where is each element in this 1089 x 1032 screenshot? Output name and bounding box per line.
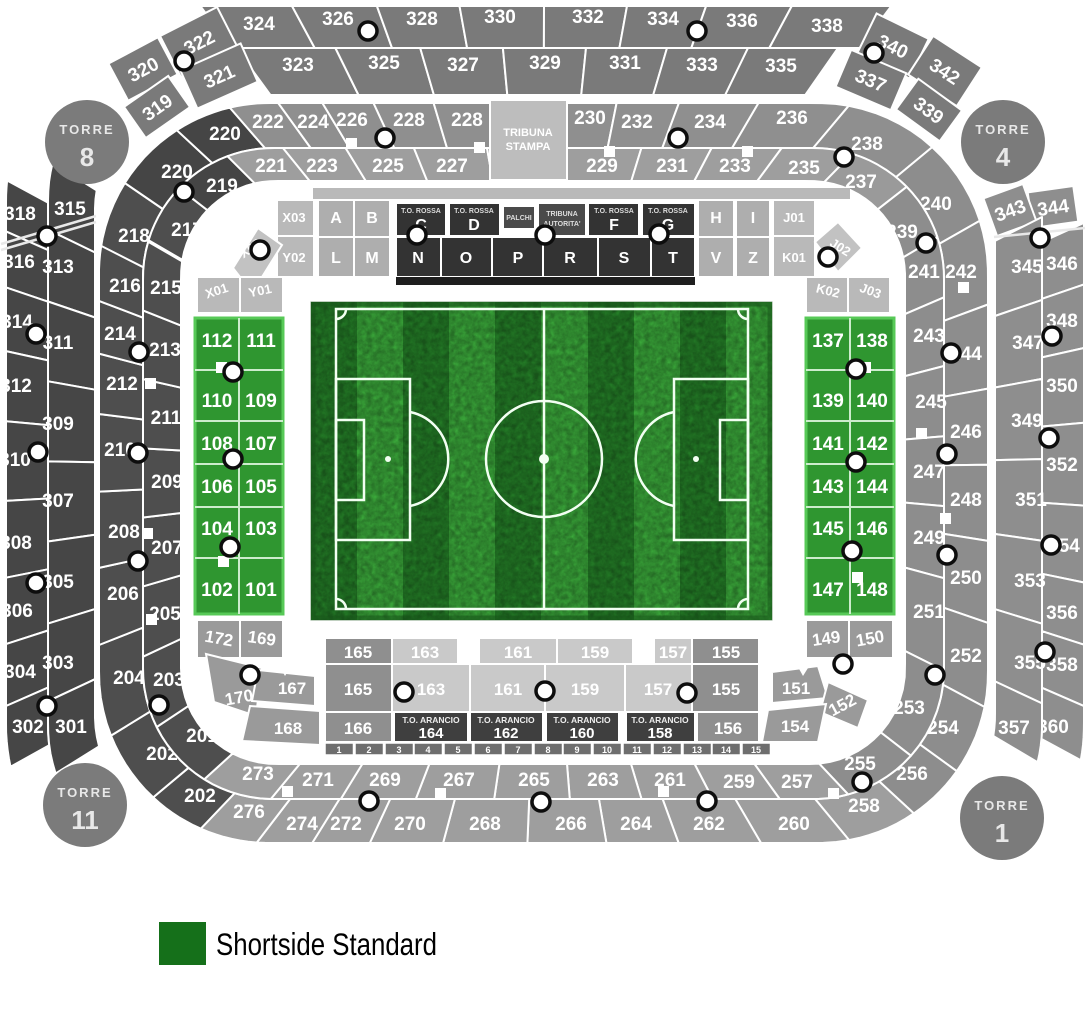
svg-text:247: 247 bbox=[913, 462, 945, 483]
svg-text:303: 303 bbox=[42, 653, 74, 674]
svg-text:109: 109 bbox=[245, 391, 277, 412]
svg-text:203: 203 bbox=[153, 670, 185, 691]
svg-text:PALCHI: PALCHI bbox=[506, 215, 532, 222]
svg-text:166: 166 bbox=[344, 719, 372, 738]
svg-text:331: 331 bbox=[609, 53, 641, 74]
svg-text:318: 318 bbox=[4, 204, 36, 225]
svg-text:3: 3 bbox=[396, 745, 401, 755]
svg-text:242: 242 bbox=[945, 262, 977, 283]
svg-text:212: 212 bbox=[106, 374, 138, 395]
svg-text:257: 257 bbox=[781, 772, 813, 793]
svg-text:168: 168 bbox=[274, 719, 302, 738]
svg-text:11: 11 bbox=[71, 805, 99, 835]
svg-text:246: 246 bbox=[950, 422, 982, 443]
svg-text:A: A bbox=[330, 210, 342, 227]
svg-text:326: 326 bbox=[322, 9, 354, 30]
svg-text:245: 245 bbox=[915, 392, 947, 413]
svg-text:155: 155 bbox=[712, 643, 740, 662]
svg-text:157: 157 bbox=[644, 680, 672, 699]
svg-text:204: 204 bbox=[113, 668, 145, 689]
svg-text:112: 112 bbox=[202, 331, 233, 352]
svg-text:2: 2 bbox=[366, 745, 371, 755]
svg-text:248: 248 bbox=[950, 490, 982, 511]
svg-text:227: 227 bbox=[436, 156, 468, 177]
svg-text:12: 12 bbox=[662, 745, 672, 755]
svg-text:T.O. ARANCIO: T.O. ARANCIO bbox=[553, 715, 611, 725]
svg-text:276: 276 bbox=[233, 802, 265, 823]
svg-text:160: 160 bbox=[569, 725, 594, 742]
svg-text:155: 155 bbox=[712, 680, 740, 699]
svg-text:8: 8 bbox=[545, 745, 550, 755]
svg-text:142: 142 bbox=[856, 434, 888, 455]
svg-text:264: 264 bbox=[620, 814, 652, 835]
svg-text:311: 311 bbox=[43, 333, 74, 354]
svg-text:T.O. ROSSA: T.O. ROSSA bbox=[648, 208, 688, 215]
svg-text:X03: X03 bbox=[282, 210, 305, 225]
svg-text:163: 163 bbox=[411, 643, 439, 662]
svg-text:7: 7 bbox=[515, 745, 520, 755]
svg-text:310: 310 bbox=[0, 450, 31, 471]
svg-text:234: 234 bbox=[694, 112, 726, 133]
svg-text:335: 335 bbox=[765, 56, 797, 77]
svg-text:TRIBUNA: TRIBUNA bbox=[546, 211, 578, 218]
svg-text:161: 161 bbox=[494, 680, 522, 699]
svg-text:274: 274 bbox=[286, 814, 318, 835]
svg-text:349: 349 bbox=[1011, 411, 1043, 432]
svg-text:6: 6 bbox=[485, 745, 490, 755]
svg-text:306: 306 bbox=[1, 601, 33, 622]
svg-text:157: 157 bbox=[659, 643, 687, 662]
svg-text:217: 217 bbox=[171, 220, 203, 241]
svg-text:167: 167 bbox=[278, 679, 306, 698]
svg-text:209: 209 bbox=[151, 472, 183, 493]
svg-text:N: N bbox=[412, 250, 424, 267]
svg-text:137: 137 bbox=[812, 331, 844, 352]
svg-text:271: 271 bbox=[302, 770, 334, 791]
svg-text:301: 301 bbox=[55, 717, 87, 738]
svg-text:228: 228 bbox=[393, 110, 425, 131]
svg-text:TRIBUNA: TRIBUNA bbox=[503, 127, 553, 139]
svg-text:268: 268 bbox=[469, 814, 501, 835]
svg-text:106: 106 bbox=[201, 477, 233, 498]
svg-text:H: H bbox=[710, 210, 722, 227]
svg-text:140: 140 bbox=[856, 391, 888, 412]
svg-text:302: 302 bbox=[12, 717, 44, 738]
svg-text:215: 215 bbox=[150, 278, 182, 299]
svg-text:T.O. ROSSA: T.O. ROSSA bbox=[594, 208, 634, 215]
svg-text:1: 1 bbox=[995, 818, 1009, 848]
svg-text:102: 102 bbox=[201, 580, 233, 601]
svg-text:350: 350 bbox=[1046, 376, 1078, 397]
svg-text:T.O. ROSSA: T.O. ROSSA bbox=[401, 208, 441, 215]
svg-text:330: 330 bbox=[484, 7, 516, 28]
svg-text:S: S bbox=[619, 250, 630, 267]
svg-text:229: 229 bbox=[586, 156, 618, 177]
svg-text:T.O. ARANCIO: T.O. ARANCIO bbox=[477, 715, 535, 725]
svg-text:308: 308 bbox=[0, 533, 32, 554]
svg-text:Y02: Y02 bbox=[282, 250, 305, 265]
svg-text:315: 315 bbox=[54, 199, 86, 220]
svg-text:243: 243 bbox=[913, 326, 945, 347]
svg-text:226: 226 bbox=[336, 110, 368, 131]
svg-text:325: 325 bbox=[368, 53, 400, 74]
svg-text:151: 151 bbox=[782, 679, 810, 698]
svg-text:357: 357 bbox=[998, 718, 1030, 739]
svg-text:216: 216 bbox=[109, 276, 141, 297]
svg-text:159: 159 bbox=[571, 680, 599, 699]
svg-text:143: 143 bbox=[812, 477, 844, 498]
svg-text:105: 105 bbox=[245, 477, 277, 498]
svg-text:312: 312 bbox=[0, 376, 32, 397]
svg-text:351: 351 bbox=[1015, 490, 1047, 511]
svg-text:239: 239 bbox=[886, 222, 918, 243]
svg-text:L: L bbox=[331, 250, 341, 267]
svg-text:225: 225 bbox=[372, 156, 404, 177]
svg-text:103: 103 bbox=[245, 519, 277, 540]
svg-text:213: 213 bbox=[149, 340, 181, 361]
svg-text:259: 259 bbox=[723, 772, 755, 793]
svg-text:353: 353 bbox=[1014, 571, 1046, 592]
svg-text:221: 221 bbox=[255, 156, 287, 177]
svg-text:101: 101 bbox=[245, 580, 277, 601]
svg-text:220: 220 bbox=[209, 124, 241, 145]
svg-text:TORRE: TORRE bbox=[59, 122, 114, 137]
svg-text:138: 138 bbox=[856, 331, 888, 352]
svg-text:Shortside Standard: Shortside Standard bbox=[216, 926, 437, 962]
svg-text:11: 11 bbox=[632, 745, 642, 755]
svg-text:332: 332 bbox=[572, 7, 604, 28]
svg-text:158: 158 bbox=[647, 725, 672, 742]
svg-text:161: 161 bbox=[504, 643, 532, 662]
svg-text:O: O bbox=[460, 250, 472, 267]
svg-text:219: 219 bbox=[206, 176, 238, 197]
svg-text:201: 201 bbox=[186, 726, 218, 747]
svg-text:334: 334 bbox=[647, 9, 679, 30]
svg-text:148: 148 bbox=[856, 580, 888, 601]
svg-text:156: 156 bbox=[714, 719, 742, 738]
svg-text:262: 262 bbox=[693, 814, 725, 835]
svg-text:251: 251 bbox=[913, 602, 945, 623]
svg-text:356: 356 bbox=[1046, 603, 1078, 624]
svg-text:265: 265 bbox=[518, 770, 550, 791]
svg-text:TORRE: TORRE bbox=[975, 122, 1030, 137]
svg-text:316: 316 bbox=[3, 252, 35, 273]
svg-text:232: 232 bbox=[621, 112, 653, 133]
svg-text:328: 328 bbox=[406, 9, 438, 30]
svg-text:347: 347 bbox=[1012, 333, 1044, 354]
svg-text:346: 346 bbox=[1046, 254, 1078, 275]
svg-text:14: 14 bbox=[721, 745, 731, 755]
svg-text:309: 309 bbox=[42, 414, 74, 435]
svg-text:4: 4 bbox=[425, 745, 430, 755]
svg-text:10: 10 bbox=[602, 745, 612, 755]
svg-text:V: V bbox=[711, 250, 722, 267]
svg-text:336: 336 bbox=[726, 11, 758, 32]
svg-text:147: 147 bbox=[812, 580, 844, 601]
svg-text:5: 5 bbox=[455, 745, 460, 755]
svg-text:327: 327 bbox=[447, 55, 479, 76]
svg-text:224: 224 bbox=[297, 112, 329, 133]
svg-text:313: 313 bbox=[42, 257, 74, 278]
svg-text:228: 228 bbox=[451, 110, 483, 131]
svg-text:111: 111 bbox=[246, 331, 276, 352]
svg-text:304: 304 bbox=[4, 662, 36, 683]
svg-text:159: 159 bbox=[581, 643, 609, 662]
svg-text:230: 230 bbox=[574, 108, 606, 129]
svg-text:208: 208 bbox=[108, 522, 140, 543]
svg-text:165: 165 bbox=[344, 643, 372, 662]
svg-text:1: 1 bbox=[336, 745, 341, 755]
svg-text:329: 329 bbox=[529, 53, 561, 74]
svg-text:8: 8 bbox=[80, 142, 94, 172]
svg-text:270: 270 bbox=[394, 814, 426, 835]
svg-text:STAMPA: STAMPA bbox=[506, 141, 551, 153]
svg-text:K01: K01 bbox=[782, 250, 806, 265]
svg-text:145: 145 bbox=[812, 519, 844, 540]
svg-text:211: 211 bbox=[151, 408, 182, 429]
svg-text:R: R bbox=[564, 250, 576, 267]
svg-text:M: M bbox=[365, 250, 378, 267]
svg-text:256: 256 bbox=[896, 764, 928, 785]
svg-text:146: 146 bbox=[856, 519, 888, 540]
svg-text:272: 272 bbox=[330, 814, 362, 835]
svg-text:269: 269 bbox=[369, 770, 401, 791]
svg-text:110: 110 bbox=[202, 391, 233, 412]
svg-text:4: 4 bbox=[996, 142, 1011, 172]
svg-text:141: 141 bbox=[812, 434, 844, 455]
svg-text:238: 238 bbox=[851, 134, 883, 155]
svg-text:B: B bbox=[366, 210, 378, 227]
svg-text:206: 206 bbox=[107, 584, 139, 605]
svg-text:165: 165 bbox=[344, 680, 372, 699]
svg-text:I: I bbox=[751, 210, 755, 227]
svg-text:163: 163 bbox=[417, 680, 445, 699]
svg-text:164: 164 bbox=[418, 725, 444, 742]
svg-text:P: P bbox=[513, 250, 524, 267]
svg-text:154: 154 bbox=[781, 717, 810, 736]
svg-text:F: F bbox=[609, 217, 619, 234]
svg-text:15: 15 bbox=[751, 745, 761, 755]
svg-text:218: 218 bbox=[118, 226, 150, 247]
svg-text:338: 338 bbox=[811, 16, 843, 37]
svg-text:T: T bbox=[668, 250, 678, 267]
svg-text:T.O. ARANCIO: T.O. ARANCIO bbox=[402, 715, 460, 725]
svg-text:260: 260 bbox=[778, 814, 810, 835]
svg-text:Z: Z bbox=[748, 250, 758, 267]
svg-text:252: 252 bbox=[950, 646, 982, 667]
svg-text:169: 169 bbox=[246, 627, 277, 650]
svg-text:333: 333 bbox=[686, 55, 718, 76]
svg-text:235: 235 bbox=[788, 158, 820, 179]
svg-text:144: 144 bbox=[856, 477, 888, 498]
svg-text:352: 352 bbox=[1046, 455, 1078, 476]
svg-text:T.O. ARANCIO: T.O. ARANCIO bbox=[631, 715, 689, 725]
svg-text:307: 307 bbox=[42, 491, 74, 512]
svg-text:222: 222 bbox=[252, 112, 284, 133]
svg-text:250: 250 bbox=[950, 568, 982, 589]
svg-text:267: 267 bbox=[443, 770, 475, 791]
svg-text:253: 253 bbox=[893, 698, 925, 719]
svg-text:241: 241 bbox=[908, 262, 940, 283]
svg-text:207: 207 bbox=[151, 538, 183, 559]
svg-text:9: 9 bbox=[574, 745, 579, 755]
svg-text:249: 249 bbox=[913, 528, 945, 549]
svg-text:266: 266 bbox=[555, 814, 587, 835]
svg-text:324: 324 bbox=[243, 14, 275, 35]
svg-text:258: 258 bbox=[848, 796, 880, 817]
svg-text:149: 149 bbox=[811, 627, 842, 650]
svg-text:D: D bbox=[468, 217, 480, 234]
svg-text:323: 323 bbox=[282, 55, 314, 76]
svg-text:263: 263 bbox=[587, 770, 619, 791]
svg-text:345: 345 bbox=[1011, 257, 1043, 278]
svg-text:223: 223 bbox=[306, 156, 338, 177]
svg-text:162: 162 bbox=[493, 725, 518, 742]
svg-text:236: 236 bbox=[776, 108, 808, 129]
svg-text:305: 305 bbox=[42, 572, 74, 593]
svg-text:13: 13 bbox=[692, 745, 702, 755]
svg-text:J01: J01 bbox=[783, 210, 805, 225]
svg-text:TORRE: TORRE bbox=[57, 785, 112, 800]
svg-text:233: 233 bbox=[719, 156, 751, 177]
svg-text:231: 231 bbox=[656, 156, 688, 177]
svg-text:TORRE: TORRE bbox=[974, 798, 1029, 813]
svg-text:273: 273 bbox=[242, 764, 274, 785]
svg-text:107: 107 bbox=[245, 434, 277, 455]
svg-text:139: 139 bbox=[812, 391, 844, 412]
svg-text:214: 214 bbox=[104, 324, 136, 345]
svg-text:202: 202 bbox=[184, 786, 216, 807]
svg-text:T.O. ROSSA: T.O. ROSSA bbox=[454, 208, 494, 215]
